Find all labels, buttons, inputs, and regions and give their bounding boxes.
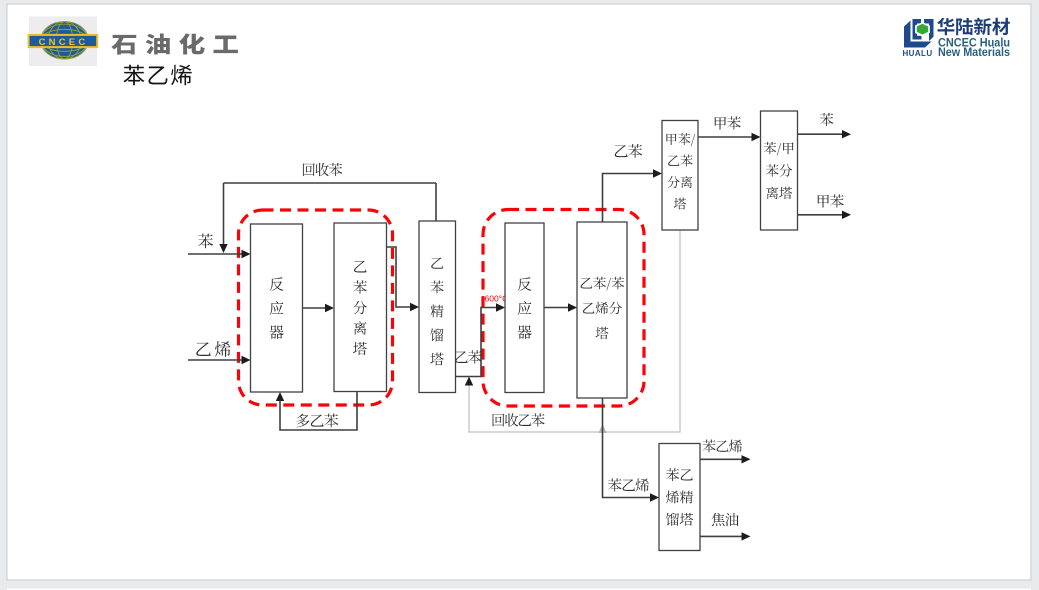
svg-text:HUALU: HUALU	[903, 49, 933, 58]
svg-text:CNCEC: CNCEC	[39, 37, 89, 48]
svg-text:New Materials: New Materials	[938, 45, 1010, 59]
